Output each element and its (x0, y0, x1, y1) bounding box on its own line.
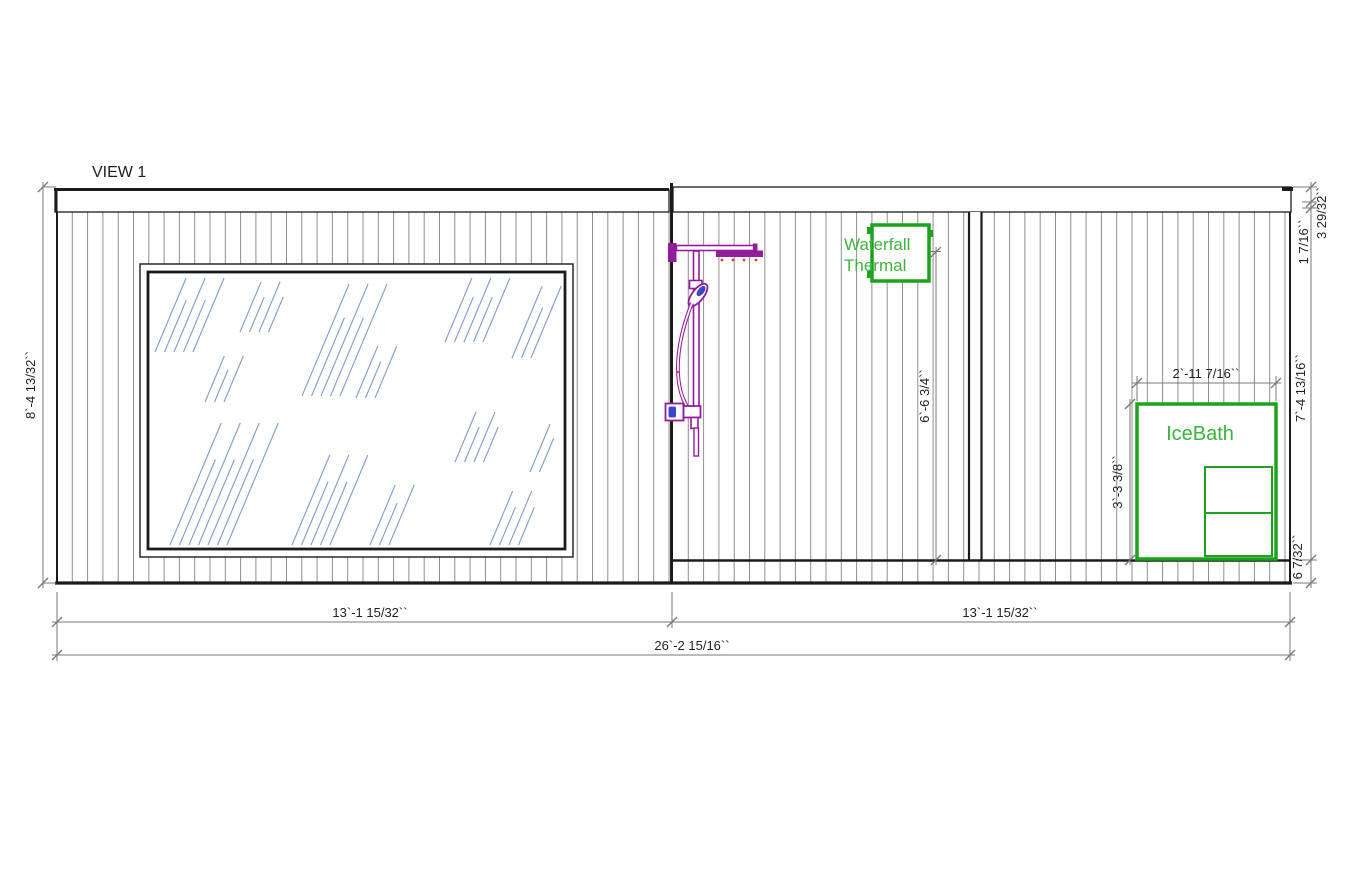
dim-right-roof-edge: 1 7/16`` (1296, 220, 1311, 265)
mixer-handle (684, 406, 701, 418)
icebath-feature: IceBath (1137, 404, 1276, 559)
spout-pipe (694, 428, 699, 456)
waterfall-box-tab (867, 227, 872, 234)
shower-fixture (666, 243, 764, 456)
dim-right-base-height: 6 7/32`` (1290, 535, 1305, 580)
nozzle-dot (732, 259, 735, 262)
dim-right-wall-height: 7`-4 13/16`` (1293, 354, 1308, 422)
nozzle-dot (721, 259, 724, 262)
rain-shower-head (716, 251, 763, 258)
waterfall-label-line2: Thermal (844, 256, 906, 275)
waterfall-label-line1: Waterfall (844, 235, 910, 254)
dim-shower-zone-height: 6`-6 3/4`` (917, 369, 932, 422)
dim-right-section-width: 13`-1 15/32`` (962, 605, 1037, 620)
dim-overall-width: 26`-2 15/16`` (654, 638, 729, 653)
shower-wall-mount (668, 243, 677, 262)
nozzle-dot (743, 259, 746, 262)
hose-dot (676, 371, 679, 374)
mixer-knob (669, 407, 677, 418)
roof-cap-right (673, 187, 1293, 212)
dim-icebath-height: 3`-3 3/8`` (1110, 455, 1125, 508)
dim-icebath-width: 2`-11 7/16`` (1173, 366, 1240, 381)
wall-trim-gap (970, 212, 981, 560)
nozzle-dot (755, 259, 758, 262)
dim-overall-height: 8`-4 13/32`` (23, 351, 38, 419)
dim-right-roof-cap: 3 29/32`` (1314, 187, 1329, 239)
elevation-drawing: VIEW 1 (0, 0, 1366, 877)
view-title: VIEW 1 (92, 164, 146, 181)
waterfall-thermal-feature: Waterfall Thermal (844, 225, 941, 281)
window (140, 264, 573, 557)
shower-arm (677, 246, 757, 251)
cad-elevation-page: VIEW 1 (0, 0, 1366, 877)
icebath-label: IceBath (1166, 423, 1234, 445)
roof-cap-left (54, 189, 669, 212)
window-outer-frame (140, 264, 573, 557)
mixer-lower (691, 418, 698, 429)
shower-riser-pipe (694, 251, 700, 412)
waterfall-box-tab (928, 230, 933, 237)
dim-left-section-width: 13`-1 15/32`` (332, 605, 407, 620)
shower-hose (678, 303, 692, 410)
